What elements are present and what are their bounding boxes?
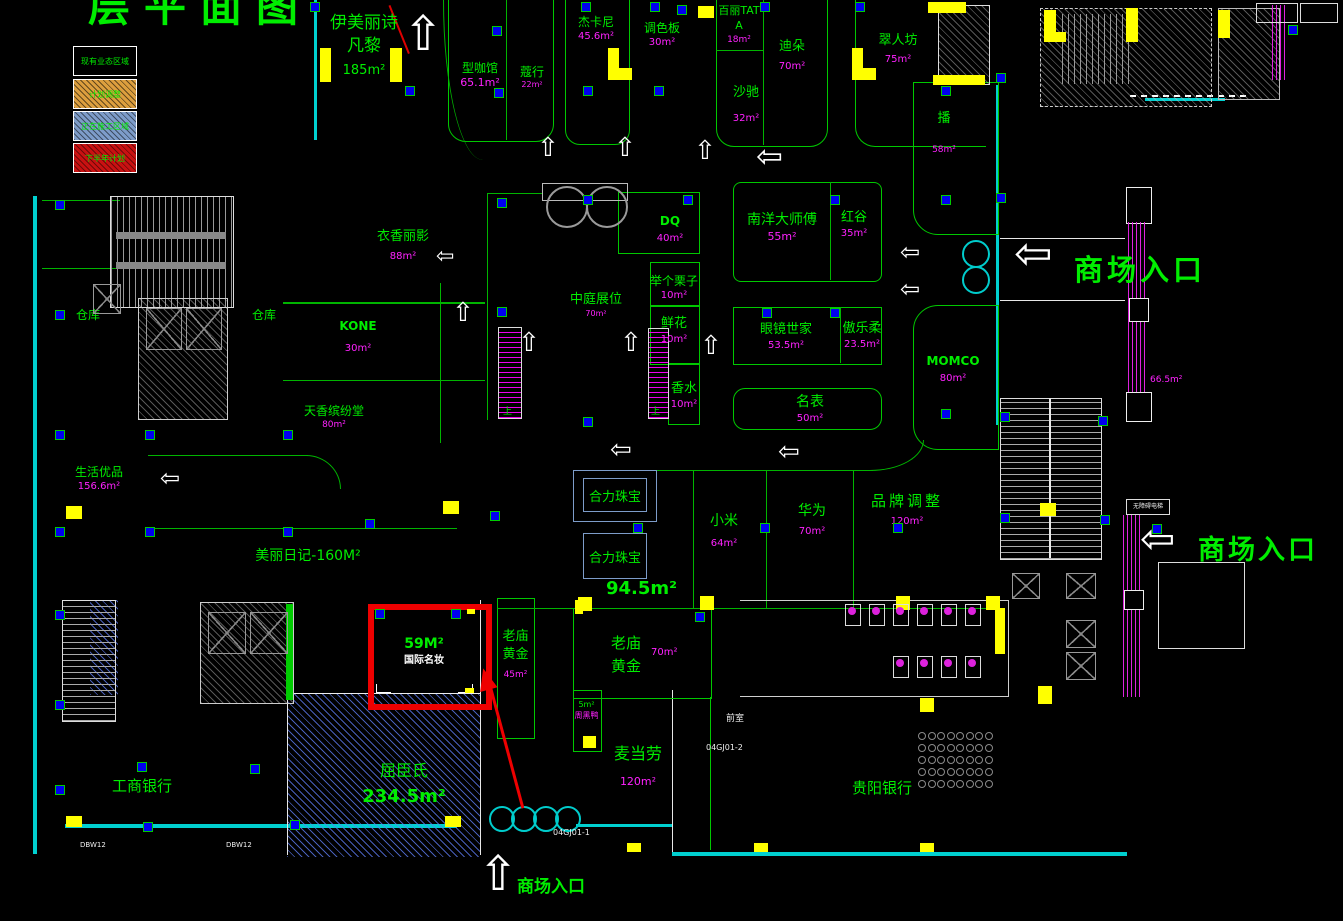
store-huawei-area: 70m² bbox=[786, 525, 838, 539]
store-dq-name: DQ bbox=[648, 213, 692, 229]
yellow-column bbox=[390, 48, 402, 82]
direction-arrow-up: ⇧ bbox=[478, 850, 518, 898]
store-yixiang-area: 88m² bbox=[374, 250, 432, 264]
left-room-wall bbox=[314, 0, 317, 140]
yellow-column bbox=[443, 501, 459, 514]
store-nanyang-area: 55m² bbox=[742, 230, 822, 245]
column-marker bbox=[996, 193, 1006, 203]
direction-arrow-up: ⇧ bbox=[452, 300, 474, 326]
store-diduo: 迪朵 70m² bbox=[770, 38, 814, 73]
store-zhongting: 中庭展位 70m² bbox=[564, 291, 628, 319]
column-marker bbox=[941, 409, 951, 419]
yellow-column bbox=[920, 698, 934, 712]
yellow-column bbox=[467, 609, 475, 614]
yellow-column bbox=[995, 608, 1005, 654]
column-marker bbox=[283, 430, 293, 440]
store-xianhua-area: 10m² bbox=[652, 333, 696, 347]
store-dq: DQ 40m² bbox=[648, 213, 692, 246]
direction-arrow-left: ⇦ bbox=[1140, 518, 1175, 560]
highlight-name: 国际名妆 bbox=[390, 654, 458, 668]
store-yanjing: 眼镜世家 53.5m² bbox=[754, 321, 818, 352]
column-marker bbox=[654, 86, 664, 96]
yellow-column bbox=[852, 68, 876, 80]
waiting-chair bbox=[937, 732, 945, 740]
store-guiyang: 贵阳银行 bbox=[842, 778, 922, 798]
column-marker bbox=[855, 2, 865, 12]
store-huawei-name: 华为 bbox=[786, 502, 838, 521]
store-mingbiao-area: 50m² bbox=[786, 412, 834, 426]
fixture-icon bbox=[896, 607, 904, 615]
court-edge-h bbox=[487, 193, 543, 194]
warehouse-box bbox=[42, 200, 120, 201]
entrance-label-bottom: 商场入口 bbox=[517, 872, 585, 897]
store-aolerou-name: 傲乐柔 bbox=[834, 320, 890, 338]
store-bo-name: 播 bbox=[928, 110, 960, 128]
yellow-column bbox=[698, 6, 714, 18]
column-marker bbox=[941, 195, 951, 205]
direction-arrow-left: ⇦ bbox=[756, 140, 783, 172]
store-bailitata: 百丽TATA 18m² bbox=[716, 4, 762, 46]
column-marker bbox=[1098, 416, 1108, 426]
store-gongshang: 工商银行 bbox=[106, 776, 178, 796]
direction-arrow-up: ⇧ bbox=[518, 330, 540, 356]
waiting-chair bbox=[975, 732, 983, 740]
waiting-chair bbox=[928, 744, 936, 752]
store-mingbiao: 名表 50m² bbox=[786, 393, 834, 425]
store-xiaomi: 小米 64m² bbox=[698, 512, 750, 550]
yellow-column bbox=[583, 736, 596, 748]
toilet-stall bbox=[965, 604, 981, 626]
heli-box2: 合力珠宝 bbox=[583, 533, 647, 579]
kone-bottom-line bbox=[283, 380, 485, 381]
column-marker bbox=[650, 2, 660, 12]
door-code-bank: 04GJ01-2 bbox=[706, 743, 743, 752]
column-marker bbox=[581, 2, 591, 12]
waiting-chair bbox=[956, 744, 964, 752]
fixture-icon bbox=[848, 607, 856, 615]
yellow-column bbox=[320, 48, 331, 82]
store-yimeili-name: 伊美丽诗凡黎 bbox=[330, 12, 398, 58]
store-cuirenfang-area: 75m² bbox=[870, 53, 926, 67]
plan-title: 层平面图 bbox=[88, 0, 312, 34]
store-yimeili: 伊美丽诗凡黎 185m² bbox=[330, 12, 398, 79]
store-tiaoseban: 调色板 30m² bbox=[640, 20, 684, 50]
waiting-chair bbox=[975, 768, 983, 776]
store-zhouheiya-area: 5m² bbox=[573, 700, 600, 711]
waiting-chair bbox=[985, 744, 993, 752]
store-kouhang-name: 蔻行 bbox=[512, 64, 552, 80]
waiting-chair bbox=[947, 780, 955, 788]
column-marker bbox=[1000, 513, 1010, 523]
direction-arrow-left: ⇦ bbox=[1014, 230, 1053, 276]
store-zhouheiya-name: 周黑鸭 bbox=[573, 711, 600, 722]
column-marker bbox=[55, 785, 65, 795]
store-zhongting-area: 70m² bbox=[564, 309, 628, 320]
store-shenghuo-area: 156.6m² bbox=[70, 480, 128, 494]
column-marker bbox=[830, 195, 840, 205]
heli-box2-label: 合力珠宝 bbox=[589, 547, 641, 566]
waiting-chair bbox=[918, 780, 926, 788]
entrance-label-right-lower: 商场入口 bbox=[1198, 528, 1318, 567]
store-xiaomi-area: 64m² bbox=[698, 537, 750, 551]
column-marker bbox=[583, 86, 593, 96]
elevator-scallop-1 bbox=[546, 186, 588, 228]
column-marker bbox=[55, 700, 65, 710]
stairs-right-divider bbox=[1049, 398, 1051, 558]
direction-arrow-left: ⇦ bbox=[436, 246, 454, 268]
store-kone: KONE 30m² bbox=[336, 318, 380, 356]
legend-planned: 计划调整 bbox=[73, 79, 137, 109]
room-bo bbox=[913, 82, 999, 235]
wall-code-2: DBW12 bbox=[226, 841, 252, 849]
store-kone-area: 30m² bbox=[336, 342, 380, 356]
elevator-box bbox=[1012, 573, 1040, 599]
store-cuirenfang: 翠人坊 75m² bbox=[870, 32, 926, 66]
column-marker bbox=[893, 523, 903, 533]
shoprow-div2 bbox=[766, 470, 767, 608]
store-meili-name: 美丽日记-160M² bbox=[248, 547, 368, 566]
waiting-chair bbox=[928, 732, 936, 740]
accessible-lift-label: 无障碍电梯 bbox=[1126, 499, 1170, 515]
direction-arrow-left: ⇦ bbox=[778, 439, 800, 465]
column-marker bbox=[490, 511, 500, 521]
entrance2-room bbox=[1158, 562, 1245, 649]
stairs-top-left-landing bbox=[116, 232, 226, 239]
waiting-chair bbox=[928, 768, 936, 776]
store-xingkaguan: 型咖馆 65.1m² bbox=[452, 60, 508, 91]
waiting-chair bbox=[918, 732, 926, 740]
store-laomiao2-name: 老庙黄金 bbox=[608, 632, 644, 679]
store-juge-area: 10m² bbox=[648, 289, 700, 303]
store-bo: 播 58m² bbox=[928, 110, 960, 156]
entrance-passage-bottom bbox=[1000, 300, 1125, 301]
fixture-icon bbox=[944, 607, 952, 615]
column-marker bbox=[145, 430, 155, 440]
waiting-chair bbox=[928, 780, 936, 788]
watsons-left-wall bbox=[287, 695, 288, 855]
toilet-stall bbox=[845, 604, 861, 626]
store-honggu-area: 35m² bbox=[832, 227, 876, 241]
elevator-box bbox=[208, 612, 246, 654]
store-zhouheiya: 5m² 周黑鸭 bbox=[573, 700, 600, 722]
waiting-chair bbox=[975, 744, 983, 752]
yellow-column bbox=[1218, 10, 1230, 38]
store-huawei: 华为 70m² bbox=[786, 502, 838, 538]
heli-box1-label: 合力珠宝 bbox=[589, 486, 641, 505]
column-marker bbox=[55, 310, 65, 320]
waiting-chair bbox=[937, 756, 945, 764]
store-gongshang-name: 工商银行 bbox=[106, 776, 178, 796]
toilet-stall bbox=[941, 656, 957, 678]
column-marker bbox=[762, 308, 772, 318]
toilet-stall bbox=[917, 604, 933, 626]
store-honggu: 红谷 35m² bbox=[832, 209, 876, 240]
store-xiangshui-name: 香水 bbox=[666, 380, 702, 398]
waiting-chair bbox=[947, 756, 955, 764]
yellow-column bbox=[1126, 8, 1138, 42]
walkway-arc bbox=[306, 455, 341, 489]
store-tiaoseban-area: 30m² bbox=[640, 36, 684, 50]
column-marker bbox=[310, 2, 320, 12]
vestibule-label: 前室 bbox=[726, 711, 744, 724]
waiting-chair bbox=[947, 768, 955, 776]
waiting-chair bbox=[956, 732, 964, 740]
fixture-icon bbox=[968, 659, 976, 667]
direction-arrow-up: ⇧ bbox=[614, 135, 636, 161]
waiting-chair bbox=[966, 756, 974, 764]
yellow-column bbox=[575, 600, 583, 614]
box-far-right-1 bbox=[1256, 3, 1298, 23]
store-shachi: 沙驰 32m² bbox=[724, 84, 768, 125]
travelator2-mid-box bbox=[1124, 590, 1144, 610]
column-marker bbox=[55, 527, 65, 537]
store-juge: 举个栗子 10m² bbox=[648, 273, 700, 303]
yellow-column bbox=[920, 843, 934, 852]
store-xiaomi-name: 小米 bbox=[698, 512, 750, 531]
store-xiangshui-area: 10m² bbox=[666, 398, 702, 412]
store-maidanglao-name: 麦当劳 bbox=[606, 743, 670, 765]
yellow-column bbox=[754, 843, 768, 852]
left-wall bbox=[33, 196, 37, 854]
waiting-chair bbox=[985, 780, 993, 788]
column-marker bbox=[55, 430, 65, 440]
stairs-right bbox=[1000, 398, 1102, 560]
elevator-box bbox=[93, 284, 121, 314]
legend-h2plan: 下半年计划 bbox=[73, 143, 137, 173]
column-marker bbox=[760, 2, 770, 12]
store-cuirenfang-name: 翠人坊 bbox=[870, 32, 926, 50]
column-marker bbox=[996, 73, 1006, 83]
column-marker bbox=[1000, 412, 1010, 422]
store-meili: 美丽日记-160M² bbox=[248, 547, 368, 566]
store-aolerou-area: 23.5m² bbox=[834, 338, 890, 352]
floorplan-canvas[interactable]: 层平面图 现有业态区域 计划调整 正在施工区域 下半年计划 bbox=[0, 0, 1343, 921]
column-marker bbox=[830, 308, 840, 318]
column-marker bbox=[250, 764, 260, 774]
elevator-box bbox=[250, 612, 288, 654]
yellow-column bbox=[933, 75, 985, 85]
waiting-chair bbox=[937, 744, 945, 752]
direction-arrow-up: ⇧ bbox=[403, 10, 443, 58]
yellow-column bbox=[66, 816, 82, 827]
waiting-chair bbox=[918, 768, 926, 776]
heli-box1: 合力珠宝 bbox=[583, 478, 647, 512]
column-marker bbox=[55, 610, 65, 620]
elevator-box bbox=[186, 308, 222, 350]
store-cangku2: 仓库 bbox=[248, 307, 280, 323]
direction-arrow-up: ⇧ bbox=[700, 333, 722, 359]
waiting-chair bbox=[985, 768, 993, 776]
waiting-chair bbox=[966, 768, 974, 776]
store-diduo-name: 迪朵 bbox=[770, 38, 814, 56]
revolving-door-right-1 bbox=[962, 240, 990, 268]
toilet-stall bbox=[893, 604, 909, 626]
store-laomiao2: 老庙黄金 bbox=[608, 632, 644, 679]
waiting-chair bbox=[947, 732, 955, 740]
store-kouhang: 蔻行 22m² bbox=[512, 64, 552, 91]
escalator-right-up-label: 上 bbox=[651, 404, 660, 417]
yellow-column bbox=[1040, 503, 1056, 516]
toilet-stall bbox=[869, 604, 885, 626]
column-marker bbox=[405, 86, 415, 96]
direction-arrow-left: ⇦ bbox=[900, 277, 920, 301]
waiting-chair bbox=[956, 768, 964, 776]
store-pinpai-name: 品牌调整 bbox=[862, 491, 952, 511]
column-marker bbox=[583, 417, 593, 427]
legend-construction: 正在施工区域 bbox=[73, 111, 137, 141]
store-bailitata-name: 百丽TATA bbox=[716, 4, 762, 34]
highlight-area-label: 59M² 国际名妆 bbox=[390, 635, 458, 667]
yellow-column bbox=[445, 816, 461, 827]
store-xianhua-name: 鲜花 bbox=[652, 315, 696, 333]
stairs-top-left-landing2 bbox=[116, 262, 226, 269]
toilet-stall bbox=[893, 656, 909, 678]
heli-area-label: 94.5m² bbox=[606, 578, 677, 599]
stairs-top-right bbox=[1062, 14, 1132, 84]
store-shachi-name: 沙驰 bbox=[724, 84, 768, 102]
waiting-chair bbox=[966, 744, 974, 752]
toilet-stall bbox=[965, 656, 981, 678]
store-xiangshui: 香水 10m² bbox=[666, 380, 702, 411]
store-cangku2-name: 仓库 bbox=[248, 307, 280, 323]
elevator-box bbox=[146, 308, 182, 350]
waiting-chair bbox=[937, 768, 945, 776]
store-jiekani-area: 45.6m² bbox=[572, 30, 620, 44]
store-nanyang: 南洋大师傅 55m² bbox=[742, 211, 822, 245]
column-marker bbox=[365, 519, 375, 529]
store-tianxiang: 天香缤纷堂 80m² bbox=[298, 403, 370, 431]
column-marker bbox=[492, 26, 502, 36]
direction-arrow-left: ⇦ bbox=[900, 240, 920, 264]
store-laomiao1-area: 45m² bbox=[499, 669, 532, 681]
column-marker bbox=[695, 612, 705, 622]
waiting-chair bbox=[956, 780, 964, 788]
waiting-chair bbox=[947, 744, 955, 752]
waiting-chair bbox=[956, 756, 964, 764]
store-yixiang: 衣香丽影 88m² bbox=[374, 228, 432, 263]
store-bo-area: 58m² bbox=[928, 144, 960, 156]
column-marker bbox=[143, 822, 153, 832]
highlight-area-value: 59M² bbox=[390, 635, 458, 654]
travelator1-bottom-box bbox=[1126, 392, 1152, 422]
store-bailitata-area: 18m² bbox=[716, 34, 762, 46]
stairs-bottom-left bbox=[62, 600, 116, 722]
column-marker bbox=[497, 307, 507, 317]
fixture-icon bbox=[896, 659, 904, 667]
divider-tata-h bbox=[716, 50, 763, 51]
column-marker bbox=[375, 609, 385, 619]
store-tiaoseban-name: 调色板 bbox=[640, 20, 684, 36]
store-guiyang-name: 贵阳银行 bbox=[842, 778, 922, 798]
store-yimeili-area: 185m² bbox=[330, 62, 398, 80]
store-mingbiao-name: 名表 bbox=[786, 393, 834, 412]
store-tianxiang-name: 天香缤纷堂 bbox=[298, 403, 370, 419]
store-jiekani-name: 杰卡尼 bbox=[572, 14, 620, 30]
travelator1-top-box bbox=[1126, 187, 1152, 224]
store-momco-area: 80m² bbox=[922, 372, 984, 386]
column-marker bbox=[583, 195, 593, 205]
toilet-stall bbox=[941, 604, 957, 626]
store-kouhang-area: 22m² bbox=[512, 80, 552, 91]
warehouse-box2 bbox=[42, 268, 120, 269]
store-momco-name: MOMCO bbox=[922, 353, 984, 369]
store-pinpai: 品牌调整 120m² bbox=[862, 491, 952, 529]
store-zhongting-name: 中庭展位 bbox=[564, 291, 628, 309]
store-diduo-area: 70m² bbox=[770, 60, 814, 74]
fixture-icon bbox=[920, 659, 928, 667]
travelator1-mid-box bbox=[1129, 298, 1149, 322]
store-juge-name: 举个栗子 bbox=[648, 273, 700, 289]
fixture-icon bbox=[920, 607, 928, 615]
store-yanjing-name: 眼镜世家 bbox=[754, 321, 818, 339]
store-yanjing-area: 53.5m² bbox=[754, 339, 818, 353]
waiting-chair bbox=[966, 780, 974, 788]
store-laomiao1: 老庙黄金 45m² bbox=[499, 628, 532, 681]
entrance-label-right-upper: 商场入口 bbox=[1074, 247, 1206, 289]
column-marker bbox=[760, 523, 770, 533]
elevator-box bbox=[1066, 573, 1096, 599]
waiting-chair bbox=[966, 732, 974, 740]
court-edge-v bbox=[487, 193, 488, 420]
elevator-scallop-2 bbox=[586, 186, 628, 228]
direction-arrow-up: ⇧ bbox=[620, 330, 642, 356]
column-marker bbox=[1100, 515, 1110, 525]
column-marker bbox=[451, 609, 461, 619]
shoprow-div1 bbox=[693, 470, 694, 608]
waiting-chair bbox=[928, 756, 936, 764]
column-marker bbox=[290, 820, 300, 830]
direction-arrow-left: ⇦ bbox=[160, 466, 180, 490]
column-marker bbox=[137, 762, 147, 772]
yellow-column bbox=[608, 68, 632, 80]
column-marker bbox=[145, 527, 155, 537]
highlight-corner-bl bbox=[376, 684, 391, 693]
store-maidanglao: 麦当劳 120m² bbox=[606, 743, 670, 789]
legend-construction-label: 正在施工区域 bbox=[81, 121, 129, 132]
waiting-chair bbox=[985, 732, 993, 740]
revolving-door-right-2 bbox=[962, 266, 990, 294]
toilet-block-top-right bbox=[938, 5, 990, 85]
column-marker bbox=[677, 5, 687, 15]
direction-arrow-up: ⇧ bbox=[537, 135, 559, 161]
column-marker bbox=[633, 523, 643, 533]
column-marker bbox=[497, 198, 507, 208]
legend-existing: 现有业态区域 bbox=[73, 46, 137, 76]
legend-h2plan-label: 下半年计划 bbox=[85, 153, 125, 164]
fixture-icon bbox=[944, 659, 952, 667]
waiting-chair bbox=[975, 756, 983, 764]
wall-code-1: DBW12 bbox=[80, 841, 106, 849]
store-shachi-area: 32m² bbox=[724, 112, 768, 126]
store-dq-area: 40m² bbox=[648, 232, 692, 246]
waiting-chair bbox=[985, 756, 993, 764]
direction-arrow-left: ⇦ bbox=[610, 437, 632, 463]
yellow-column bbox=[1044, 32, 1066, 42]
store-jiekani: 杰卡尼 45.6m² bbox=[572, 14, 620, 44]
store-xingkaguan-name: 型咖馆 bbox=[452, 60, 508, 76]
store-kone-name: KONE bbox=[336, 318, 380, 334]
store-xianhua: 鲜花 10m² bbox=[652, 315, 696, 346]
yellow-column bbox=[465, 688, 474, 693]
shoprow-arc bbox=[870, 440, 924, 471]
column-marker bbox=[494, 88, 504, 98]
direction-arrow-up: ⇧ bbox=[694, 138, 716, 164]
yellow-column bbox=[700, 596, 714, 610]
yellow-column bbox=[627, 843, 641, 852]
column-marker bbox=[283, 527, 293, 537]
store-nanyang-name: 南洋大师傅 bbox=[742, 211, 822, 230]
store-tianxiang-area: 80m² bbox=[298, 419, 370, 431]
